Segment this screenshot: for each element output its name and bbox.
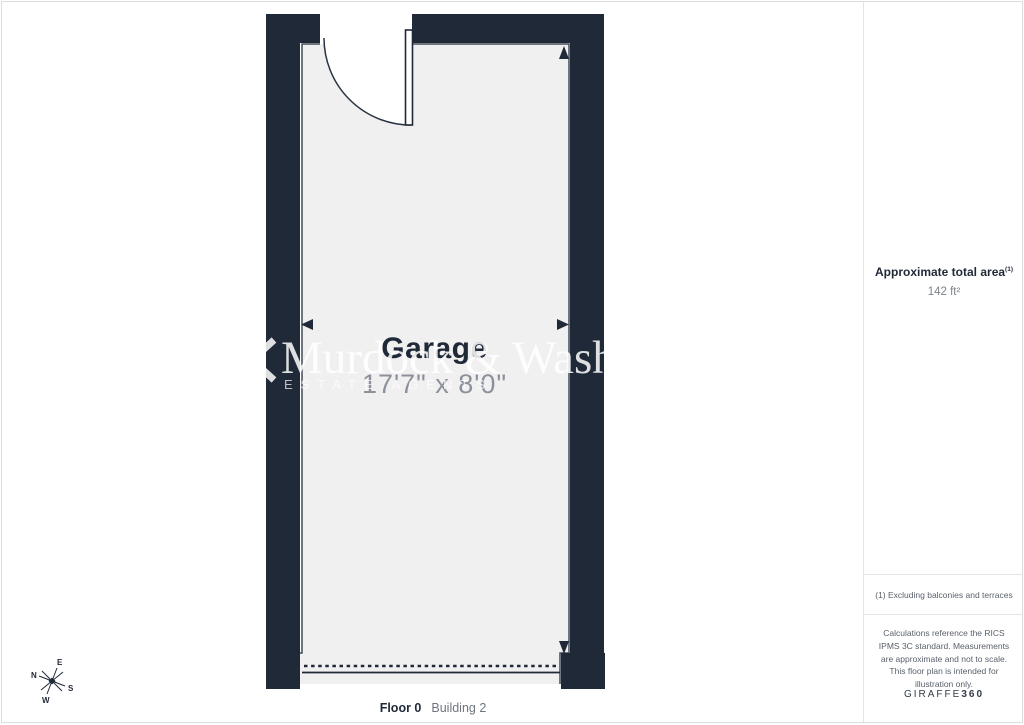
page: Garage 17'7" x 8'0" Murdock & Wash ESTAT… [1, 1, 1023, 723]
sidebar: Approximate total area(1) 142 ft² (1) Ex… [863, 2, 1023, 723]
brand-logo: GIRAFFE360 [864, 689, 1023, 700]
wall-top-left [266, 14, 320, 43]
brand-regular: GIRAFFE [904, 689, 961, 700]
compass-n-label: N [31, 671, 37, 680]
wall-right-lower [561, 653, 605, 689]
floor-label-block: Floor 0Building 2 [2, 701, 864, 715]
wall-left [266, 14, 300, 689]
brand-bold: 360 [961, 689, 984, 700]
compass-rose-icon: E N S W [22, 650, 84, 712]
room-dimensions: 17'7" x 8'0" [301, 369, 568, 400]
compass-s-label: S [68, 684, 74, 693]
footnote-text: (1) Excluding balconies and terraces [875, 590, 1013, 600]
compass-e-label: E [57, 658, 63, 667]
footnote-block: (1) Excluding balconies and terraces [864, 574, 1023, 615]
room-label-block: Garage 17'7" x 8'0" [301, 332, 568, 400]
floor-label: Floor 0 [380, 701, 422, 715]
disclaimer-text: Calculations reference the RICS IPMS 3C … [864, 627, 1023, 691]
total-area-footnote-marker: (1) [1005, 266, 1013, 273]
total-area-title-text: Approximate total area [875, 265, 1005, 279]
total-area-value: 142 ft² [864, 286, 1023, 298]
compass-w-label: W [42, 696, 50, 705]
building-label: Building 2 [431, 701, 486, 715]
total-area-block: Approximate total area(1) 142 ft² [864, 265, 1023, 298]
wall-right-upper [570, 14, 604, 653]
total-area-title: Approximate total area(1) [864, 265, 1023, 279]
door-leaf [406, 30, 413, 125]
room-name: Garage [301, 332, 568, 366]
